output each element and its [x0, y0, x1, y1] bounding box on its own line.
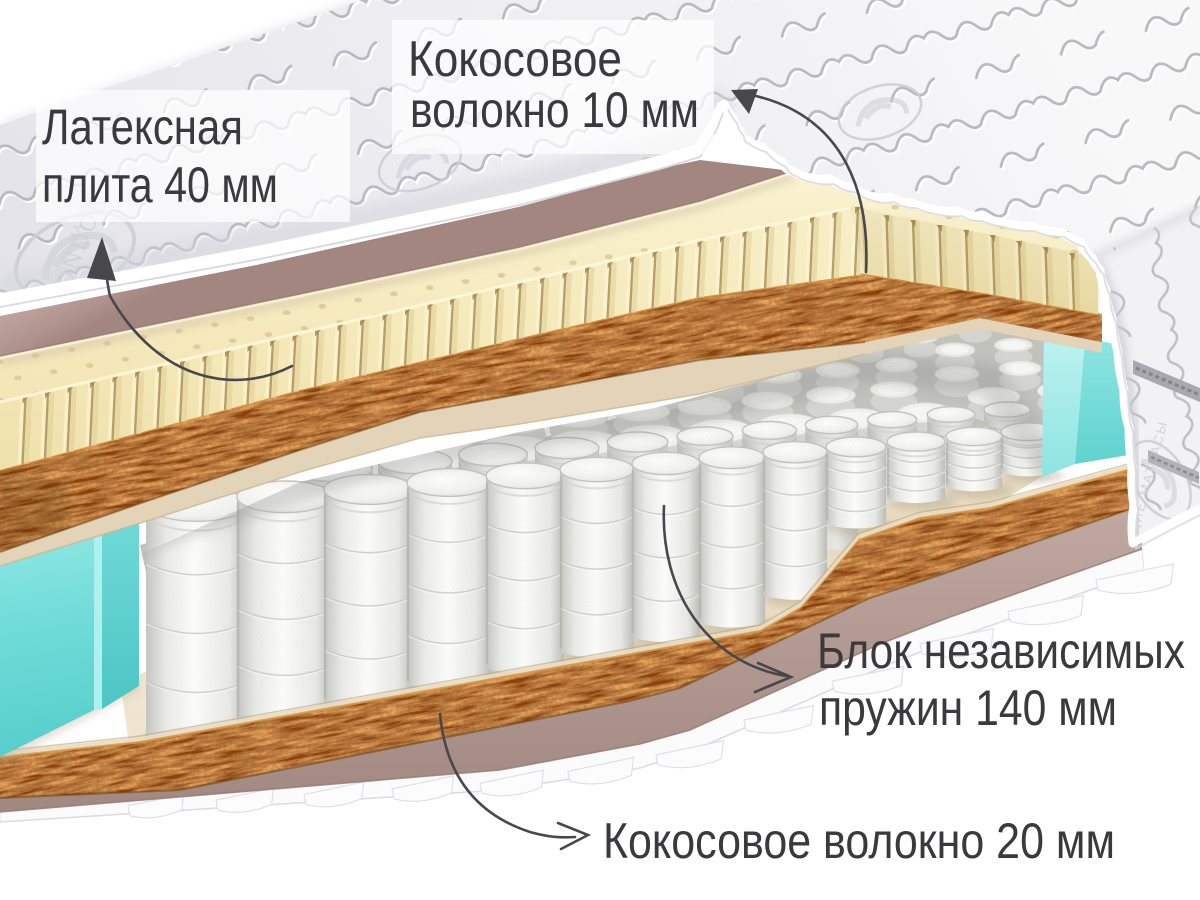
svg-text:Кокосовое: Кокосовое — [408, 31, 622, 87]
svg-text:Латексная: Латексная — [42, 99, 243, 155]
svg-text:волокно 10 мм: волокно 10 мм — [410, 82, 699, 138]
svg-text:Блок независимых: Блок независимых — [817, 623, 1185, 679]
svg-text:плита 40 мм: плита 40 мм — [42, 157, 278, 213]
svg-text:пружин 140 мм: пружин 140 мм — [819, 680, 1117, 736]
svg-text:Кокосовое волокно 20 мм: Кокосовое волокно 20 мм — [603, 813, 1115, 869]
